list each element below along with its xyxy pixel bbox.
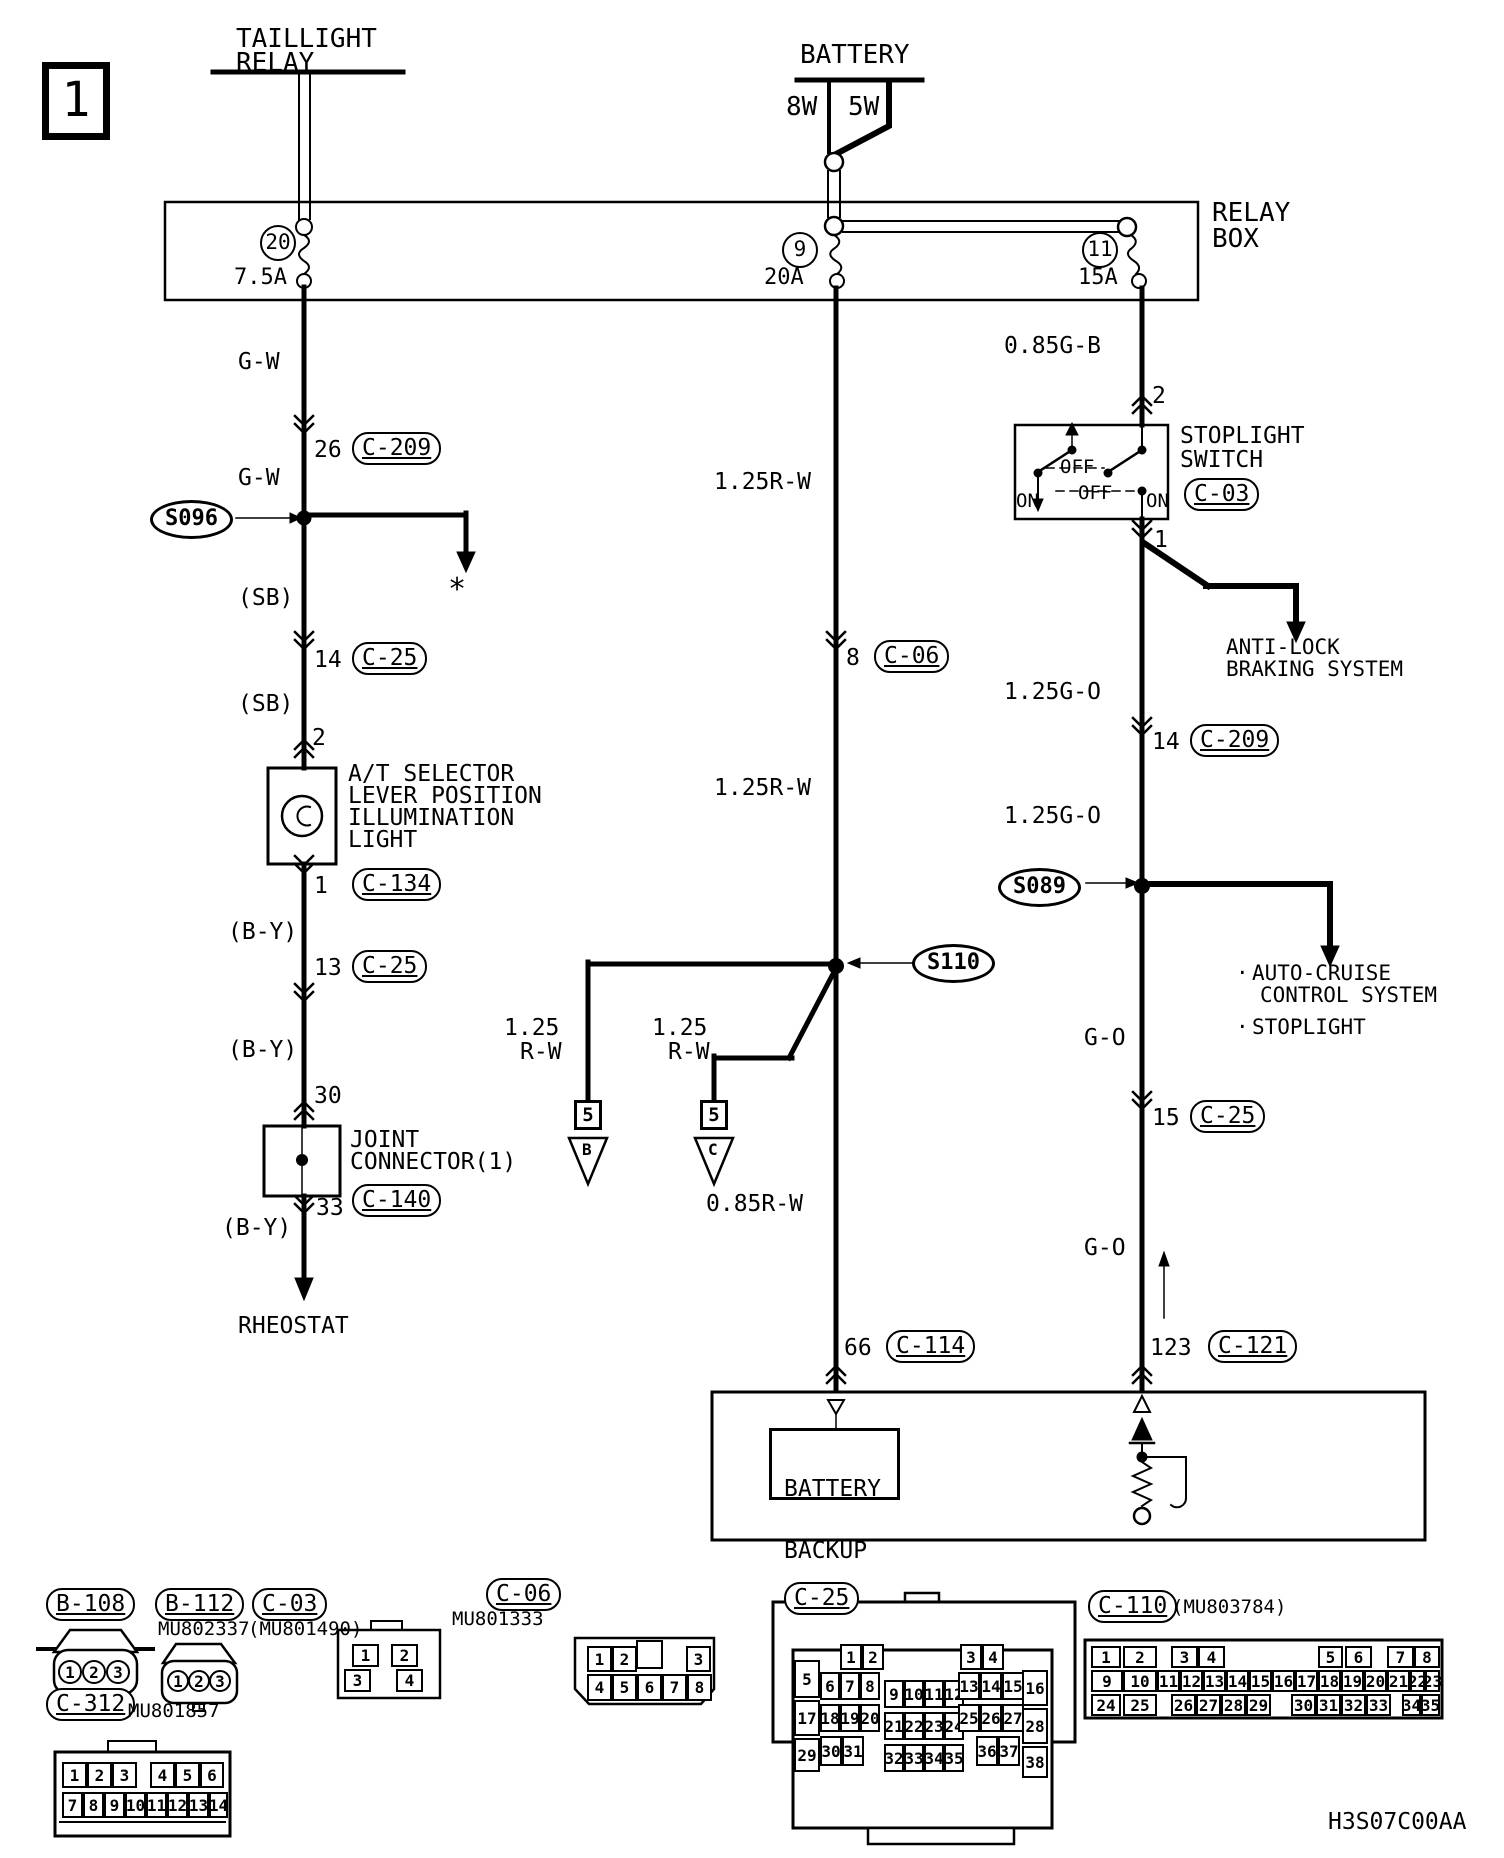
connector-name-b112: B-112 [155, 1588, 244, 1621]
c110-pin-9: 9 [1091, 1670, 1123, 1692]
connector-ref-c209-left: C-209 [352, 432, 441, 465]
c110-pin-24: 24 [1091, 1694, 1121, 1716]
c06-pin-6: 6 [637, 1674, 662, 1701]
c25-pin-3: 3 [960, 1644, 982, 1670]
c110-pin-3: 3 [1171, 1646, 1198, 1668]
pin-label-66: 66 [844, 1336, 872, 1360]
c03-pin-1: 1 [352, 1644, 379, 1667]
fuse-20-number: 20 [260, 225, 296, 261]
switch-on-left-label: ON [1016, 492, 1039, 511]
wire-label-gw-1: G-W [238, 350, 280, 374]
at-light-symbol [268, 768, 336, 864]
fuse-9-amp: 20A [764, 266, 804, 289]
c110-pin-33: 33 [1366, 1694, 1391, 1716]
c25-pin-22: 22 [904, 1712, 924, 1740]
c110-pin-6: 6 [1345, 1646, 1372, 1668]
c25-pin-36: 36 [976, 1736, 998, 1766]
pin-label-26: 26 [314, 438, 342, 462]
page-number-box: 1 [42, 62, 110, 140]
left-column-wire [295, 287, 313, 1300]
pin-label-123: 123 [1150, 1336, 1192, 1360]
connector-part-c06: MU801333 [452, 1610, 544, 1629]
c110-pin-20: 20 [1364, 1670, 1387, 1692]
c110-pin-19: 19 [1341, 1670, 1364, 1692]
c25-pin-17: 17 [794, 1700, 820, 1736]
wire-label-rwc: R-W [668, 1040, 710, 1064]
c25-pin-38: 38 [1022, 1746, 1048, 1778]
c110-pin-1: 1 [1091, 1646, 1121, 1668]
splice-s110: S110 [912, 944, 995, 983]
at-light-label-4: LIGHT [348, 828, 417, 852]
c25-pin-4: 4 [982, 1644, 1004, 1670]
connector-part-c03: (MU801490) [248, 1620, 362, 1639]
connector-ref-c134: C-134 [352, 868, 441, 901]
b112-pin-1: 1 [167, 1670, 189, 1692]
c25-pin-19: 19 [840, 1704, 860, 1732]
b108-pin-1: 1 [58, 1660, 82, 1684]
pin-label-8: 8 [846, 646, 860, 670]
c25-pin-13: 13 [958, 1672, 980, 1700]
wire-label-rw-2: 1.25R-W [714, 776, 811, 800]
c25-pin-11: 11 [924, 1680, 944, 1708]
connector-name-c110: C-110 [1088, 1590, 1177, 1623]
c110-pin-16: 16 [1272, 1670, 1295, 1692]
connector-name-c312: C-312 [46, 1688, 135, 1721]
c25-pin-15: 15 [1002, 1672, 1024, 1700]
c110-pin-15: 15 [1249, 1670, 1272, 1692]
c06-pin-1: 1 [587, 1646, 612, 1672]
c312-pin-11: 11 [146, 1792, 167, 1818]
abs-branch [1144, 543, 1305, 642]
footnote-asterisk: * [448, 572, 466, 607]
c25-pin-16: 16 [1022, 1670, 1048, 1706]
c06-pin-8: 8 [687, 1674, 712, 1701]
fuse-20-symbol [296, 219, 312, 288]
c312-pin-7: 7 [62, 1792, 83, 1818]
wire-label-go-3: G-O [1084, 1026, 1126, 1050]
c110-pin-31: 31 [1316, 1694, 1341, 1716]
fuse-20-amp: 7.5A [234, 266, 287, 289]
bullet-2: · [1236, 1016, 1249, 1038]
c06-pin-5: 5 [612, 1674, 637, 1701]
connector-ref-c209-right: C-209 [1190, 724, 1279, 757]
fuse-11-amp: 15A [1078, 266, 1118, 289]
connector-ref-c114: C-114 [886, 1330, 975, 1363]
c110-pin-11: 11 [1157, 1670, 1180, 1692]
c110-pin-2: 2 [1123, 1646, 1157, 1668]
c25-pin-37: 37 [998, 1736, 1020, 1766]
c312-pin-10: 10 [125, 1792, 146, 1818]
wire-label-go-1: 1.25G-O [1004, 680, 1101, 704]
abs-label-2: BRAKING SYSTEM [1226, 658, 1403, 680]
c312-pin-6: 6 [200, 1762, 224, 1788]
connector-ref-c06: C-06 [874, 640, 949, 673]
switch-on-right-label: ON [1146, 492, 1169, 511]
c25-pin-6: 6 [820, 1672, 840, 1700]
c110-pin-7: 7 [1387, 1646, 1414, 1668]
relay-box-label-2: BOX [1212, 226, 1259, 253]
auto-cruise-label-1: AUTO-CRUISE [1252, 962, 1391, 984]
pin-label-2: 2 [312, 726, 326, 750]
splice-s089: S089 [998, 868, 1081, 907]
c312-pin-2: 2 [87, 1762, 112, 1788]
pin-label-30: 30 [314, 1084, 342, 1108]
wire-label-sb-2: (SB) [238, 692, 293, 716]
connector-ref-c25-right: C-25 [1190, 1100, 1265, 1133]
wire-label-by-1: (B-Y) [228, 920, 297, 944]
auto-cruise-label-2: CONTROL SYSTEM [1260, 984, 1437, 1006]
bullet-1: · [1236, 962, 1249, 984]
c25-pin-32: 32 [884, 1744, 904, 1772]
b108-pin-3: 3 [106, 1660, 130, 1684]
c25-pin-8: 8 [860, 1672, 880, 1700]
c25-pin-26: 26 [980, 1704, 1002, 1732]
pin-label-14r: 14 [1152, 730, 1180, 754]
splice-s096: S096 [150, 500, 233, 539]
taillight-relay-wire [213, 72, 403, 219]
wire-label-rw-3: 0.85R-W [706, 1192, 803, 1216]
c312-pin-5: 5 [175, 1762, 200, 1788]
rheostat-label: RHEOSTAT [238, 1314, 349, 1338]
c25-pin-2: 2 [862, 1644, 884, 1670]
joint-connector-symbol [264, 1126, 340, 1196]
c110-pin-35: 35 [1421, 1694, 1440, 1716]
c03-pin-2: 2 [391, 1644, 418, 1667]
wiring-diagram-page: 1 TAILLIGHT RELAY BATTERY 8W 5W RELAY BO… [0, 0, 1504, 1858]
c25-pin-29: 29 [794, 1738, 820, 1772]
branch-c-letter: C [708, 1140, 718, 1159]
c110-pin-25: 25 [1123, 1694, 1157, 1716]
c312-pin-8: 8 [83, 1792, 104, 1818]
bulb-8w-label: 8W [786, 94, 817, 121]
wire-label-by-3: (B-Y) [222, 1216, 291, 1240]
pin-label-1: 1 [314, 874, 328, 898]
c110-pin-8: 8 [1414, 1646, 1440, 1668]
c110-pin-21: 21 [1387, 1670, 1410, 1692]
c25-pin-20: 20 [860, 1704, 880, 1732]
c110-pin-34: 34 [1402, 1694, 1421, 1716]
c25-pin-21: 21 [884, 1712, 904, 1740]
c25-pin-34: 34 [924, 1744, 944, 1772]
c110-pin-26: 26 [1171, 1694, 1196, 1716]
splice-s110-graphics [569, 958, 912, 1184]
wire-label-by-2: (B-Y) [228, 1038, 297, 1062]
c25-pin-5: 5 [794, 1660, 820, 1698]
wire-label-gw-2: G-W [238, 466, 280, 490]
c110-pin-18: 18 [1318, 1670, 1341, 1692]
wire-label-gb: 0.85G-B [1004, 334, 1101, 358]
fuse-9-symbol [830, 235, 844, 288]
c06-pin-7: 7 [662, 1674, 687, 1701]
pin-label-33: 33 [316, 1196, 344, 1220]
c06-pin-2: 2 [612, 1646, 637, 1672]
connector-ref-c25-left1: C-25 [352, 642, 427, 675]
c25-pin-30: 30 [820, 1736, 842, 1766]
c25-pin-27: 27 [1002, 1704, 1024, 1732]
b112-pin-3: 3 [209, 1670, 231, 1692]
c25-pin-33: 33 [904, 1744, 924, 1772]
c312-pin-14: 14 [209, 1792, 228, 1818]
c25-pin-35: 35 [944, 1744, 964, 1772]
right-column-wire [1142, 288, 1169, 1389]
connector-name-c25: C-25 [784, 1582, 859, 1615]
c110-pin-12: 12 [1180, 1670, 1203, 1692]
pin-label-sw1: 1 [1154, 528, 1168, 552]
fuse-9-number: 9 [782, 232, 818, 268]
wire-label-rwb: R-W [520, 1040, 562, 1064]
connector-part-c312: MU801857 [128, 1702, 220, 1721]
b112-pin-2: 2 [188, 1670, 210, 1692]
connector-name-c06: C-06 [486, 1578, 561, 1611]
c110-pin-30: 30 [1291, 1694, 1316, 1716]
c312-pin-13: 13 [188, 1792, 209, 1818]
taillight-relay-label-2: RELAY [236, 50, 314, 77]
battery-backup-label-1: BATTERY [784, 1477, 897, 1501]
connector-part-b112: MU802337 [158, 1620, 250, 1639]
c25-pin-14: 14 [980, 1672, 1002, 1700]
c110-pin-5: 5 [1318, 1646, 1343, 1668]
c03-pin-3: 3 [344, 1669, 371, 1692]
c06-pin-3: 3 [686, 1646, 711, 1672]
branch-b-pin5: 5 [574, 1100, 602, 1130]
c25-pin-18: 18 [820, 1704, 840, 1732]
pin-label-13: 13 [314, 956, 342, 980]
c25-pin-25: 25 [958, 1704, 980, 1732]
connector-part-c110: (MU803784) [1172, 1598, 1286, 1617]
pin-label-14: 14 [314, 648, 342, 672]
c312-pin-12: 12 [167, 1792, 188, 1818]
c110-pin-14: 14 [1226, 1670, 1249, 1692]
c110-pin-23: 23 [1425, 1670, 1440, 1692]
c312-pin-1: 1 [62, 1762, 87, 1788]
c312-pin-4: 4 [150, 1762, 175, 1788]
c110-pin-10: 10 [1123, 1670, 1157, 1692]
connector-name-c03: C-03 [252, 1588, 327, 1621]
c110-pin-28: 28 [1221, 1694, 1246, 1716]
abs-label-1: ANTI-LOCK [1226, 636, 1340, 658]
c25-pin-1: 1 [840, 1644, 862, 1670]
branch-b-letter: B [582, 1140, 592, 1159]
branch-c-pin5: 5 [700, 1100, 728, 1130]
fuse-11-symbol [1128, 235, 1146, 288]
connector-c312-housing [55, 1741, 230, 1836]
bulb-5w-label: 5W [848, 94, 879, 121]
c110-pin-29: 29 [1246, 1694, 1271, 1716]
joint-connector-label-2: CONNECTOR(1) [350, 1150, 516, 1174]
battery-backup-box: BATTERY BACKUP [769, 1428, 900, 1500]
pin-label-15: 15 [1152, 1106, 1180, 1130]
stoplight-dest-label: STOPLIGHT [1252, 1016, 1366, 1038]
c110-pin-17: 17 [1295, 1670, 1318, 1692]
c312-pin-3: 3 [112, 1762, 137, 1788]
b108-pin-2: 2 [82, 1660, 106, 1684]
battery-label: BATTERY [800, 42, 910, 69]
connector-ref-c121: C-121 [1208, 1330, 1297, 1363]
c110-pin-27: 27 [1196, 1694, 1221, 1716]
stoplight-switch-label-2: SWITCH [1180, 448, 1263, 472]
splice-s096-graphics [236, 511, 475, 572]
connector-name-b108: B-108 [46, 1588, 135, 1621]
c25-pin-10: 10 [904, 1680, 924, 1708]
c110-pin-32: 32 [1341, 1694, 1366, 1716]
wire-label-go-4: G-O [1084, 1236, 1126, 1260]
wire-label-go-2: 1.25G-O [1004, 804, 1101, 828]
connector-ref-c03: C-03 [1184, 478, 1259, 511]
battery-backup-label-2: BACKUP [784, 1539, 897, 1563]
c312-pin-9: 9 [104, 1792, 125, 1818]
wire-label-rwc-size: 1.25 [652, 1016, 707, 1040]
c110-pin-13: 13 [1203, 1670, 1226, 1692]
splice-s089-graphics [1086, 878, 1339, 966]
switch-off-bottom-label: OFF [1078, 484, 1112, 503]
c03-pin-4: 4 [396, 1669, 423, 1692]
wire-label-rwb-size: 1.25 [504, 1016, 559, 1040]
connector-ref-c140: C-140 [352, 1184, 441, 1217]
sheet-code: H3S07C00AA [1328, 1810, 1466, 1834]
c25-pin-23: 23 [924, 1712, 944, 1740]
c25-pin-9: 9 [884, 1680, 904, 1708]
connector-ref-c25-left2: C-25 [352, 950, 427, 983]
c06-pin-4: 4 [587, 1674, 612, 1701]
wire-label-sb-1: (SB) [238, 586, 293, 610]
stoplight-switch-label-1: STOPLIGHT [1180, 424, 1305, 448]
c25-pin-7: 7 [840, 1672, 860, 1700]
switch-off-top-label: OFF [1060, 458, 1094, 477]
c110-pin-4: 4 [1198, 1646, 1225, 1668]
relay-box-outline [165, 202, 1198, 300]
wire-label-rw-1: 1.25R-W [714, 470, 811, 494]
c25-pin-31: 31 [842, 1736, 864, 1766]
pin-label-sw2: 2 [1152, 384, 1166, 408]
fuse-11-number: 11 [1082, 232, 1118, 268]
c25-pin-28: 28 [1022, 1708, 1048, 1744]
